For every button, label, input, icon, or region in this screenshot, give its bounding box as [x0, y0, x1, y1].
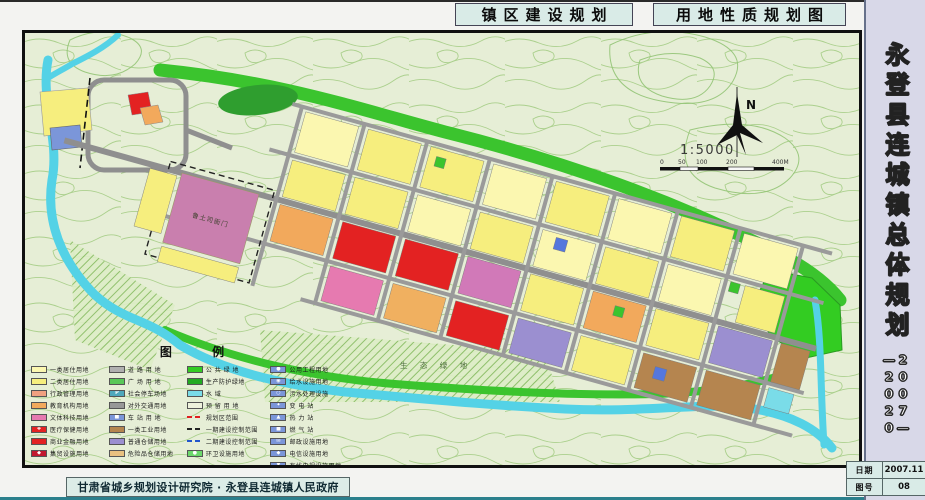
legend: 图 例 一类居住用地二类居住用地行政管理用地教育机构用地文体科技用地✚医疗保健用…	[31, 343, 353, 468]
legend-item: 公 共 绿 地	[187, 364, 266, 374]
legend-item: 二类居住用地	[31, 376, 104, 386]
legend-label: 预 留 用 地	[206, 401, 239, 410]
legend-swatch: ✉	[270, 438, 286, 445]
legend-label: 道 路 用 地	[128, 365, 161, 374]
legend-swatch: P	[109, 390, 125, 397]
legend-swatch	[187, 438, 203, 445]
legend-item: 一类居住用地	[31, 364, 104, 374]
legend-label: 公 共 绿 地	[206, 365, 239, 374]
legend-item: 普通仓储用地	[109, 436, 182, 446]
legend-item: ■燃 气 站	[270, 424, 353, 434]
legend-title: 图 例	[31, 343, 353, 360]
legend-label: 医疗保健用地	[50, 425, 89, 434]
legend-label: 一类居住用地	[50, 365, 89, 374]
legend-label: 电信设施用地	[289, 449, 328, 458]
legend-swatch	[109, 438, 125, 445]
scale-tick: 100	[696, 159, 708, 166]
scale-tick: 50	[678, 159, 686, 166]
legend-label: 规划区范围	[206, 413, 239, 422]
north-label: N	[746, 98, 756, 112]
legend-swatch	[109, 378, 125, 385]
legend-item: ○污水处理设施	[270, 388, 353, 398]
legend-item: 一类工业用地	[109, 424, 182, 434]
legend-column-4: ●公用工程用地◉给水设施用地○污水处理设施✦变 电 站▲热 力 站■燃 气 站✉…	[270, 364, 353, 468]
legend-label: 广 场 用 地	[128, 377, 161, 386]
legend-item: 一期建设控制范围	[187, 424, 266, 434]
sheet-info-table: 日期 2007.11 图号 08	[846, 461, 925, 496]
title-box-left: 镇区建设规划	[455, 3, 633, 26]
info-row-date: 日期 2007.11	[846, 461, 925, 479]
legend-item: 危险品仓储用地	[109, 448, 182, 458]
legend-swatch	[187, 378, 203, 385]
legend-swatch: ○	[270, 390, 286, 397]
legend-swatch: ◉	[270, 378, 286, 385]
eco-green-label: 生 态 绿 地	[400, 360, 472, 370]
legend-item: ▼有线电视设施用地	[270, 460, 353, 468]
legend-label: 一类工业用地	[128, 425, 167, 434]
legend-label: 对外交通用地	[128, 401, 167, 410]
legend-label: 热 力 站	[289, 413, 313, 422]
legend-swatch: ●	[187, 450, 203, 457]
legend-item: ✚医疗保健用地	[31, 424, 104, 434]
legend-swatch	[109, 366, 125, 373]
page-top-border	[0, 0, 925, 2]
legend-swatch	[109, 402, 125, 409]
legend-label: 文体科技用地	[50, 413, 89, 422]
map-frame: 鲁土司衙门	[22, 30, 862, 468]
legend-column-1: 一类居住用地二类居住用地行政管理用地教育机构用地文体科技用地✚医疗保健用地商业金…	[31, 364, 104, 468]
legend-item: 行政管理用地	[31, 388, 104, 398]
info-row-sheet-number: 图号 08	[846, 478, 925, 496]
date-value: 2007.11	[882, 461, 925, 479]
legend-label: 环卫设施用地	[206, 449, 245, 458]
legend-label: 污水处理设施	[289, 389, 328, 398]
legend-item: ●环卫设施用地	[187, 448, 266, 458]
legend-label: 危险品仓储用地	[128, 449, 174, 458]
legend-item: ◆集贸设施用地	[31, 448, 104, 458]
legend-item: 教育机构用地	[31, 400, 104, 410]
sidebar-plan-title: 永登县连城镇总体规划	[878, 42, 913, 342]
legend-swatch	[187, 402, 203, 409]
sidebar-plan-period: 2007— —2020	[882, 352, 910, 437]
legend-label: 有线电视设施用地	[289, 461, 341, 468]
legend-item: ◆电信设施用地	[270, 448, 353, 458]
date-label: 日期	[846, 461, 883, 479]
legend-label: 公用工程用地	[289, 365, 328, 374]
title-box-right: 用地性质规划图	[653, 3, 846, 26]
legend-swatch: ◆	[270, 450, 286, 457]
legend-swatch: ✚	[31, 426, 47, 433]
legend-swatch: ◆	[31, 450, 47, 457]
legend-item: ✦变 电 站	[270, 400, 353, 410]
sidebar: 永登县连城镇总体规划 2007— —2020	[864, 0, 925, 500]
legend-swatch	[31, 366, 47, 373]
legend-item: 对外交通用地	[109, 400, 182, 410]
legend-item: ◉给水设施用地	[270, 376, 353, 386]
legend-item: 广 场 用 地	[109, 376, 182, 386]
legend-item: ▲热 力 站	[270, 412, 353, 422]
legend-swatch	[187, 414, 203, 421]
legend-item: ●公用工程用地	[270, 364, 353, 374]
legend-item: 文体科技用地	[31, 412, 104, 422]
legend-label: 行政管理用地	[50, 389, 89, 398]
legend-item: 商业金融用地	[31, 436, 104, 446]
legend-item: P社会停车场地	[109, 388, 182, 398]
legend-swatch	[187, 390, 203, 397]
legend-label: 集贸设施用地	[50, 449, 89, 458]
legend-label: 水 域	[206, 389, 221, 398]
legend-label: 普通仓储用地	[128, 437, 167, 446]
legend-swatch	[31, 390, 47, 397]
legend-column-3: 公 共 绿 地生产防护绿地水 域预 留 用 地规划区范围一期建设控制范围二期建设…	[187, 364, 266, 468]
legend-swatch	[109, 450, 125, 457]
legend-swatch	[109, 426, 125, 433]
legend-swatch	[31, 402, 47, 409]
legend-label: 变 电 站	[289, 401, 313, 410]
legend-swatch: ✦	[270, 402, 286, 409]
legend-swatch: ●	[270, 366, 286, 373]
legend-label: 车 站 用 地	[128, 413, 161, 422]
legend-label: 给水设施用地	[289, 377, 328, 386]
legend-label: 一期建设控制范围	[206, 425, 258, 434]
legend-item: 水 域	[187, 388, 266, 398]
legend-swatch: ■	[109, 414, 125, 421]
scale-text: 1:5000	[680, 143, 735, 158]
legend-swatch: ▼	[270, 462, 286, 468]
legend-swatch	[31, 414, 47, 421]
legend-item: 预 留 用 地	[187, 400, 266, 410]
legend-item: 二期建设控制范围	[187, 436, 266, 446]
legend-item: 道 路 用 地	[109, 364, 182, 374]
legend-label: 二类居住用地	[50, 377, 89, 386]
legend-label: 商业金融用地	[50, 437, 89, 446]
legend-column-2: 道 路 用 地广 场 用 地P社会停车场地对外交通用地■车 站 用 地一类工业用…	[109, 364, 182, 468]
legend-item: 规划区范围	[187, 412, 266, 422]
legend-swatch	[31, 378, 47, 385]
planning-sheet: { "page": { "title_left": "镇区建设规划", "tit…	[0, 0, 925, 500]
legend-label: 二期建设控制范围	[206, 437, 258, 446]
legend-swatch	[31, 438, 47, 445]
legend-label: 生产防护绿地	[206, 377, 245, 386]
credit-box: 甘肃省城乡规划设计研究院 · 永登县连城镇人民政府	[66, 477, 350, 497]
legend-item: ✉邮政设施用地	[270, 436, 353, 446]
legend-swatch: ▲	[270, 414, 286, 421]
legend-swatch	[187, 366, 203, 373]
legend-swatch	[187, 426, 203, 433]
scale-tick: 200	[726, 159, 738, 166]
legend-swatch: ■	[270, 426, 286, 433]
sheet-number-value: 08	[882, 478, 925, 496]
legend-item: ■车 站 用 地	[109, 412, 182, 422]
legend-label: 邮政设施用地	[289, 437, 328, 446]
scale-tick: 0	[660, 159, 664, 166]
legend-label: 社会停车场地	[128, 389, 167, 398]
legend-item: 生产防护绿地	[187, 376, 266, 386]
sheet-number-label: 图号	[846, 478, 883, 496]
legend-label: 燃 气 站	[289, 425, 313, 434]
scale-tick: 400M	[772, 159, 789, 166]
legend-label: 教育机构用地	[50, 401, 89, 410]
legend-columns: 一类居住用地二类居住用地行政管理用地教育机构用地文体科技用地✚医疗保健用地商业金…	[31, 364, 353, 468]
